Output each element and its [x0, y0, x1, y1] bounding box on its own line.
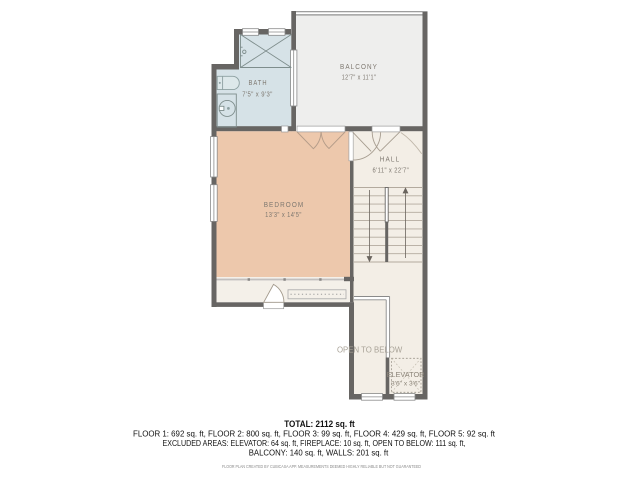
svg-text:3'6" x 3'6": 3'6" x 3'6": [391, 381, 421, 388]
svg-text:BATH: BATH: [249, 78, 268, 87]
svg-text:BEDROOM: BEDROOM: [264, 200, 305, 209]
svg-text:TOTAL: 2112 sq. ft: TOTAL: 2112 sq. ft: [284, 419, 355, 429]
svg-text:EXCLUDED AREAS: ELEVATOR: 64 s: EXCLUDED AREAS: ELEVATOR: 64 sq. ft, FIR…: [163, 439, 466, 448]
svg-text:6'11" x 22'7": 6'11" x 22'7": [373, 167, 410, 174]
svg-text:BALCONY: 140 sq. ft, WALLS: 20: BALCONY: 140 sq. ft, WALLS: 201 sq. ft: [249, 449, 389, 458]
svg-text:FLOOR 1: 692 sq. ft, FLOOR 2:: FLOOR 1: 692 sq. ft, FLOOR 2: 800 sq. ft…: [133, 430, 496, 439]
svg-text:HALL: HALL: [380, 154, 401, 163]
svg-text:OPEN TO BELOW: OPEN TO BELOW: [337, 345, 403, 355]
svg-text:ELEVATOR: ELEVATOR: [387, 372, 425, 379]
svg-text:12'7" x 11'1": 12'7" x 11'1": [342, 75, 377, 82]
svg-text:7'5" x 9'3": 7'5" x 9'3": [242, 91, 273, 98]
svg-text:BALCONY: BALCONY: [340, 62, 378, 71]
svg-text:FLOOR PLAN CREATED BY CUBICASA: FLOOR PLAN CREATED BY CUBICASA APP. MEAS…: [222, 464, 421, 469]
svg-text:13'3" x 14'5": 13'3" x 14'5": [265, 212, 302, 219]
